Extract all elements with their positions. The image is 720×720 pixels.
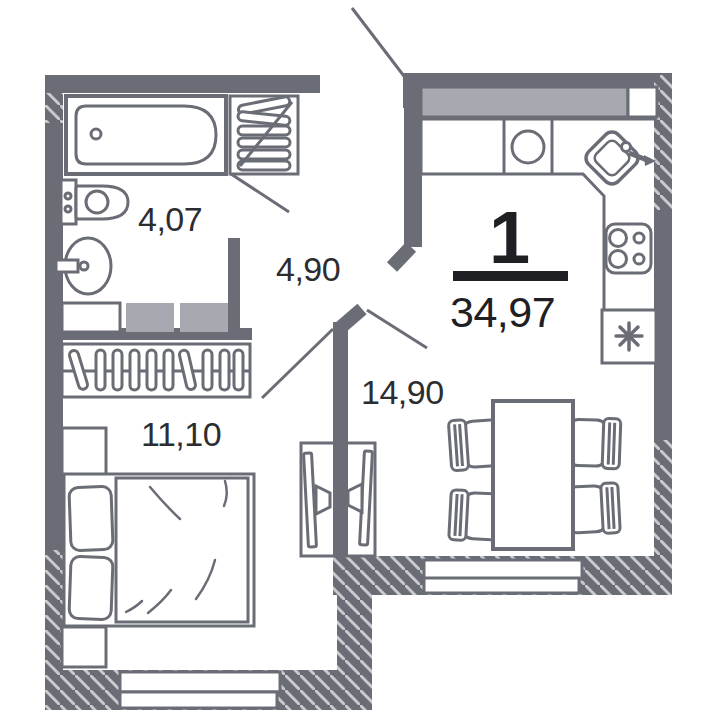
- bathtub-icon: [66, 96, 226, 174]
- top-wall-left: [45, 75, 320, 93]
- washbasin-icon: [56, 238, 111, 294]
- double-bed-icon: [64, 474, 254, 626]
- kitchen-hall-wall: [404, 90, 422, 247]
- round-sink-icon: [512, 131, 544, 163]
- bedroom-area-label: 11,10: [141, 415, 221, 453]
- total-divider: [453, 271, 568, 281]
- living-door-leaf: [367, 310, 427, 348]
- total-area-label: 34,97: [450, 288, 555, 336]
- partition-angled-cap: [340, 309, 362, 328]
- bedroom-window-pane-outer: [120, 672, 280, 692]
- bathroom-area-label: 4,07: [138, 200, 202, 238]
- entrance-door-leaf: [352, 8, 410, 84]
- wall-through-tv-unit: [333, 443, 348, 556]
- floor-plan-page: 4,07 4,90 11,10 14,90 1 34,97: [0, 0, 720, 720]
- living-area-label: 14,90: [361, 373, 444, 411]
- fridge-snowflake-icon: [602, 310, 656, 363]
- living-window-pane-outer: [424, 560, 582, 579]
- bathroom-right-wall: [228, 238, 240, 334]
- toilet-icon: [61, 180, 128, 224]
- kitchen-end-cabinet: [628, 87, 657, 117]
- stove-icon: [606, 224, 651, 273]
- corner-sink-icon: [582, 128, 656, 187]
- floor-plan-canvas: 4,07 4,90 11,10 14,90 1 34,97: [0, 0, 720, 720]
- washer-cabinet-icon: [62, 303, 228, 332]
- doors: [231, 8, 427, 398]
- towel-radiator-icon: [230, 96, 298, 174]
- bedroom-furniture: [62, 344, 254, 667]
- hallway-area-label: 4,90: [276, 250, 340, 288]
- dining-set: [448, 401, 621, 549]
- dining-table-icon: [493, 401, 573, 549]
- tv-unit-icon: [301, 443, 375, 556]
- wardrobe-hangers-icon: [62, 344, 250, 397]
- kitchen-cabinets-icon: [421, 87, 628, 117]
- living-window-pane-inner: [424, 578, 579, 593]
- pillow: [69, 486, 113, 550]
- kitchen-wall-angled-stub: [392, 247, 411, 267]
- rooms-count-label: 1: [489, 196, 529, 279]
- pillow: [69, 556, 113, 619]
- nightstand-icon: [62, 627, 106, 667]
- nightstand-icon: [62, 428, 106, 476]
- bathroom-door-leaf: [231, 174, 289, 212]
- bedroom-window-pane-inner: [120, 692, 277, 708]
- bedroom-door-leaf: [262, 329, 333, 398]
